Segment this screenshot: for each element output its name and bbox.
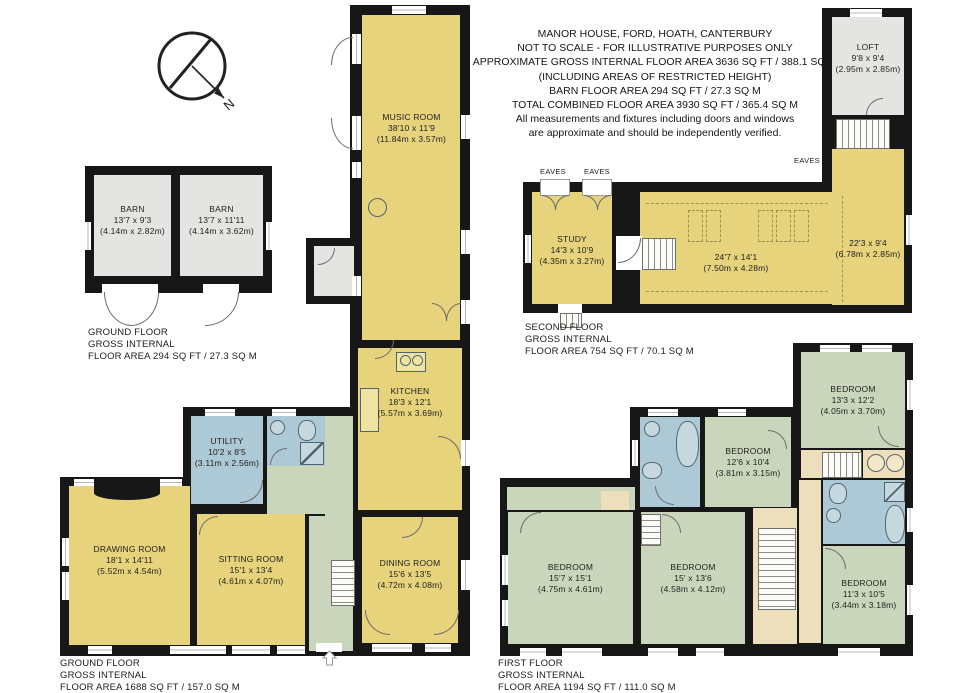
window (820, 345, 850, 352)
toilet (829, 483, 847, 504)
window (648, 409, 678, 416)
window (696, 648, 724, 656)
svg-text:N: N (221, 96, 238, 114)
window (461, 440, 470, 466)
window (266, 222, 272, 250)
room-label-kitchen: KITCHEN18'3 x 12'1(5.57m x 3.69m) (358, 380, 462, 424)
window (352, 276, 361, 296)
window (170, 646, 226, 654)
window (562, 648, 602, 656)
window (862, 345, 892, 352)
title-line: APPROXIMATE GROSS INTERNAL FLOOR AREA 36… (452, 55, 858, 69)
ground-floor-caption: GROUND FLOORGROSS INTERNALFLOOR AREA 168… (60, 658, 240, 693)
window (632, 440, 638, 466)
first-landing-upper (799, 480, 821, 643)
window (906, 215, 912, 245)
eaves-dormer (540, 179, 570, 196)
window (62, 538, 69, 566)
cooker-ring (400, 355, 411, 366)
eaves-dormer (582, 179, 612, 196)
title-line: (INCLUDING AREAS OF RESTRICTED HEIGHT) (452, 70, 858, 84)
shower (300, 442, 324, 465)
title-block: MANOR HOUSE, FORD, HOATH, CANTERBURY NOT… (452, 27, 858, 141)
bedroom-step (641, 514, 661, 546)
loft-staircase (836, 119, 890, 149)
bath (676, 421, 699, 467)
restricted-height-line (646, 203, 828, 204)
window (352, 162, 361, 178)
compass-icon: N (148, 24, 244, 120)
door-arc (331, 118, 353, 149)
dormer-outline (758, 210, 773, 242)
window (85, 222, 91, 250)
tank (368, 198, 387, 217)
hall-staircase (331, 560, 355, 606)
title-line: All measurements and fixtures including … (452, 112, 858, 126)
inglenook-arch (94, 486, 160, 500)
entrance-arrow-icon (321, 650, 338, 667)
door-arc (331, 37, 353, 65)
window (907, 380, 913, 410)
room-ground-hall-strip (325, 416, 353, 516)
first-floor-caption: FIRST FLOORGROSS INTERNALFLOOR AREA 1194… (498, 658, 676, 693)
title-line: NOT TO SCALE - FOR ILLUSTRATIVE PURPOSES… (452, 41, 858, 55)
room-label-bedroom-15-7: BEDROOM15'7 x 15'1(4.75m x 4.61m) (508, 556, 633, 600)
basin (867, 454, 885, 472)
room-label-loft: LOFT9'8 x 9'4(2.95m x 2.85m) (832, 36, 904, 80)
door-arc (131, 292, 159, 326)
window (461, 115, 470, 139)
window (502, 600, 508, 626)
window (352, 34, 361, 64)
window (907, 508, 913, 532)
toilet (298, 420, 316, 441)
first-hall-landing (601, 491, 629, 510)
eaves-label: EAVES (790, 156, 824, 165)
title-line: BARN FLOOR AREA 294 SQ FT / 27.3 SQ M (452, 84, 858, 98)
dormer-outline (706, 210, 721, 242)
room-label-dining-room: DINING ROOM15'6 x 13'5(4.72m x 4.08m) (362, 552, 458, 596)
window (425, 644, 451, 652)
eaves-label: EAVES (528, 167, 578, 176)
window (205, 409, 235, 416)
door-arc (104, 292, 132, 326)
window (352, 116, 361, 150)
first-floor-staircase-top (822, 452, 862, 478)
barn-caption: GROUND FLOORGROSS INTERNALFLOOR AREA 294… (88, 327, 257, 363)
room-label-bedroom-12-6: BEDROOM12'6 x 10'4(3.81m x 3.15m) (705, 440, 791, 484)
basin (270, 420, 285, 435)
room-label-second-main: 24'7 x 14'1(7.50m x 4.28m) (640, 248, 832, 278)
eaves-label: EAVES (572, 167, 622, 176)
window (461, 230, 470, 254)
window (74, 479, 94, 486)
floorplan-canvas: MANOR HOUSE, FORD, HOATH, CANTERBURY NOT… (0, 0, 980, 693)
room-label-second-wing: 22'3 x 9'4(6.78m x 2.85m) (832, 234, 904, 264)
basin (886, 454, 904, 472)
dormer-outline (688, 210, 703, 242)
dormer-outline (794, 210, 809, 242)
room-music-room (362, 15, 460, 340)
toilet (642, 462, 662, 479)
room-ground-hall-arm (267, 466, 325, 514)
window (392, 6, 426, 14)
window (718, 409, 746, 416)
window (88, 646, 112, 654)
basin (826, 508, 841, 523)
shower (884, 482, 905, 502)
room-label-bedroom-11-3: BEDROOM11'3 x 10'5(3.44m x 3.18m) (823, 572, 905, 616)
title-line: are approximate and should be independen… (452, 126, 858, 140)
second-floor-caption: SECOND FLOORGROSS INTERNALFLOOR AREA 754… (525, 322, 694, 358)
room-label-study: STUDY14'3 x 10'9(4.35m x 3.27m) (532, 228, 612, 272)
room-label-barn-1: BARN13'7 x 9'3(4.14m x 2.82m) (94, 198, 171, 242)
title-line: MANOR HOUSE, FORD, HOATH, CANTERBURY (452, 27, 858, 41)
room-label-utility: UTILITY10'2 x 8'5(3.11m x 2.56m) (191, 430, 263, 474)
window (160, 479, 182, 486)
room-label-music-room: MUSIC ROOM38'10 x 11'9(11.84m x 3.57m) (363, 105, 460, 151)
room-label-barn-2: BARN13'7 x 11'11(4.14m x 3.62m) (180, 198, 263, 242)
room-label-bedroom-15: BEDROOM15' x 13'6(4.58m x 4.12m) (641, 556, 745, 600)
window (62, 572, 69, 600)
room-label-bedroom-13-3: BEDROOM13'3 x 12'2(4.05m x 3.70m) (801, 378, 905, 422)
room-label-sitting-room: SITTING ROOM15'1 x 13'4(4.61m x 4.07m) (197, 548, 305, 592)
bath (885, 505, 905, 543)
window (277, 646, 305, 654)
window (461, 300, 470, 324)
dormer-outline (776, 210, 791, 242)
window (232, 646, 270, 654)
basin (644, 421, 660, 437)
cooker-ring (412, 355, 423, 366)
window (461, 560, 470, 590)
window (838, 648, 880, 656)
window (907, 585, 913, 615)
room-label-drawing-room: DRAWING ROOM18'1 x 14'11(5.52m x 4.54m) (69, 538, 190, 582)
window (520, 648, 546, 656)
window (850, 9, 882, 17)
window (525, 235, 531, 263)
title-line: TOTAL COMBINED FLOOR AREA 3930 SQ FT / 3… (452, 98, 858, 112)
first-floor-staircase (758, 528, 796, 610)
window (272, 409, 296, 416)
restricted-height-line (646, 291, 828, 292)
window (648, 648, 678, 656)
study-door-opening (558, 304, 582, 313)
door-arc (205, 292, 239, 326)
window (372, 644, 412, 652)
